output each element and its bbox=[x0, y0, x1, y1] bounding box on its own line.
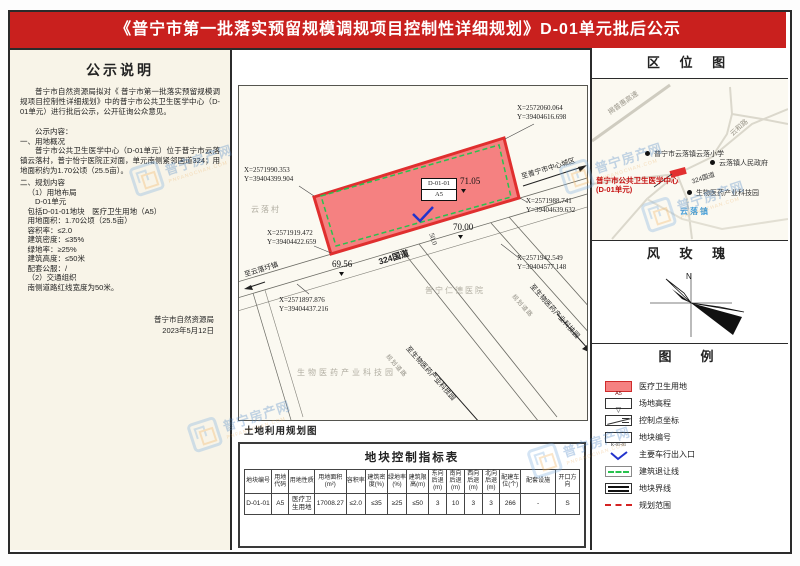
parcel-label: D-01-01 A5 bbox=[421, 178, 457, 201]
notice-line: D-01单元 bbox=[20, 197, 220, 207]
notice-date: 2023年5月12日 bbox=[20, 325, 214, 336]
legend-item: K-01-01 地块编号 bbox=[592, 429, 788, 446]
town-label: 云落镇 bbox=[680, 206, 710, 217]
health-center-label: 普宁市公共卫生医学中心 (D-01单元) bbox=[596, 176, 680, 194]
notice-paragraph: 普宁市公共卫生医学中心（D-01单元）位于普宁市云落镇云落村，普宁怡宁医院正对面… bbox=[20, 146, 220, 176]
notice-panel: 公示说明 普宁市自然资源局拟对《 普宁市第一批落实预留规模调规项目控制性详细规划… bbox=[10, 50, 232, 550]
legend-item: 控制点坐标 bbox=[592, 412, 788, 429]
school-label: 普宁市云落镇云落小学 bbox=[654, 149, 724, 159]
village-label: 云落村 bbox=[251, 204, 281, 215]
legend-header: 图 例 bbox=[592, 343, 788, 370]
coord-swatch bbox=[605, 415, 632, 426]
wind-rose: N bbox=[592, 265, 788, 343]
notice-line: 用地面积：1.70公顷（25.5亩） bbox=[20, 216, 220, 226]
legend-item: 规划范围 bbox=[592, 497, 788, 514]
parcel-use-code: A5 bbox=[435, 191, 443, 198]
legend-item: A5 医疗卫生用地 bbox=[592, 378, 788, 395]
legend-item: ▽ 场地高程 bbox=[592, 395, 788, 412]
landuse-swatch: A5 bbox=[605, 381, 632, 392]
legend-item: 主要车行出入口 bbox=[592, 446, 788, 463]
school-dot bbox=[645, 151, 650, 156]
notice-line: 二、规划内容 bbox=[20, 178, 220, 188]
notice-line: 公示内容： bbox=[20, 127, 220, 137]
elevation-swatch: ▽ bbox=[605, 398, 632, 409]
table-title: 地块控制指标表 bbox=[240, 449, 584, 465]
location-map-header: 区 位 图 bbox=[592, 48, 788, 79]
agency-name: 普宁市自然资源局 bbox=[20, 314, 214, 325]
elevation-value: 71.05 bbox=[460, 176, 480, 186]
notice-line: （2）交通组织 bbox=[20, 273, 220, 283]
government-label: 云落镇人民政府 bbox=[719, 158, 768, 168]
setback-swatch bbox=[605, 466, 632, 477]
boundary-swatch bbox=[605, 483, 632, 494]
notice-line: 建筑密度：≤35% bbox=[20, 235, 220, 245]
map-drawing bbox=[239, 86, 587, 420]
coord-callout: X=2571897.876Y=39404437.216 bbox=[279, 296, 328, 314]
government-dot bbox=[710, 160, 715, 165]
coord-callout: X=2571942.549Y=39404577.148 bbox=[517, 254, 566, 272]
north-label: N bbox=[686, 272, 692, 281]
hospital-label: 普宁仁德医院 bbox=[425, 285, 485, 296]
notice-line: 容积率：≤2.0 bbox=[20, 226, 220, 236]
biopark-label: 生物医药产业科技园 bbox=[696, 188, 759, 198]
elevation-value: 70.00 bbox=[453, 222, 473, 232]
table-row: D-01-01A5 医疗卫生用地17008.27 ≤2.0≤35 ≥25≤50 … bbox=[245, 494, 580, 515]
notice-paragraph: 普宁市自然资源局拟对《 普宁市第一批落实预留规模调规项目控制性详细规划》中的普宁… bbox=[20, 87, 220, 117]
wind-rose-header: 风 玫 瑰 bbox=[592, 240, 788, 267]
control-table-panel: 地块控制指标表 地块编号用地代码 用地性质用地面积(m²) 容积率建筑密度(%)… bbox=[238, 442, 586, 548]
notice-line: 配套公服：/ bbox=[20, 264, 220, 274]
signature-block: 普宁市自然资源局 2023年5月12日 bbox=[20, 314, 220, 336]
notice-line: 一、用地概况 bbox=[20, 137, 220, 147]
biopark-dot bbox=[687, 190, 692, 195]
biopark-label: 生物医药产业科技园 bbox=[297, 367, 396, 378]
page-title: 《普宁市第一批落实预留规模调规项目控制性详细规划》D-01单元批后公示 bbox=[115, 21, 681, 38]
table-header-row: 地块编号用地代码 用地性质用地面积(m²) 容积率建筑密度(%) 绿地率(%)建… bbox=[245, 470, 580, 494]
notice-line: 建筑高度：≤50米 bbox=[20, 254, 220, 264]
legend-item: 地块界线 bbox=[592, 480, 788, 497]
coord-callout: X=2572060.064Y=39404616.698 bbox=[517, 104, 566, 122]
legend-item: 建筑退让线 bbox=[592, 463, 788, 480]
notice-line: 包括D-01-01地块 医疗卫生用地（A5） bbox=[20, 207, 220, 217]
map-caption: 土地利用规划图 bbox=[244, 423, 318, 437]
coord-callout: X=2571919.472Y=39404422.659 bbox=[267, 229, 316, 247]
landuse-map: D-01-01 A5 71.05 70.00 69.56 X=2572060.0… bbox=[238, 85, 588, 421]
notice-line: （1）用地布局 bbox=[20, 188, 220, 198]
scope-swatch bbox=[605, 500, 632, 511]
notice-title: 公示说明 bbox=[20, 60, 220, 80]
wind-rose-figure: N bbox=[592, 265, 788, 343]
parcel-code: D-01-01 bbox=[422, 179, 456, 190]
location-map: 揭普惠高速 云和路 普宁市云落镇云落小学 云落镇人民政府 普宁市公共卫生医学中心… bbox=[592, 79, 788, 240]
legend: A5 医疗卫生用地 ▽ 场地高程 控制点坐标 K-01-01 地块编号 主要车行… bbox=[592, 369, 788, 550]
coord-callout: X=2571990.353Y=39404399.904 bbox=[244, 166, 293, 184]
entrance-swatch bbox=[605, 449, 632, 460]
notice-line: 南侧道路红线宽度为50米。 bbox=[20, 283, 220, 293]
notice-line: 绿地率：≥25% bbox=[20, 245, 220, 255]
title-banner: 《普宁市第一批落实预留规模调规项目控制性详细规划》D-01单元批后公示 bbox=[10, 12, 786, 50]
coord-callout: X=2571988.741Y=39404639.632 bbox=[526, 197, 575, 215]
plot-number-swatch: K-01-01 bbox=[605, 432, 632, 443]
elevation-value: 69.56 bbox=[332, 259, 352, 269]
control-table: 地块编号用地代码 用地性质用地面积(m²) 容积率建筑密度(%) 绿地率(%)建… bbox=[244, 469, 580, 515]
